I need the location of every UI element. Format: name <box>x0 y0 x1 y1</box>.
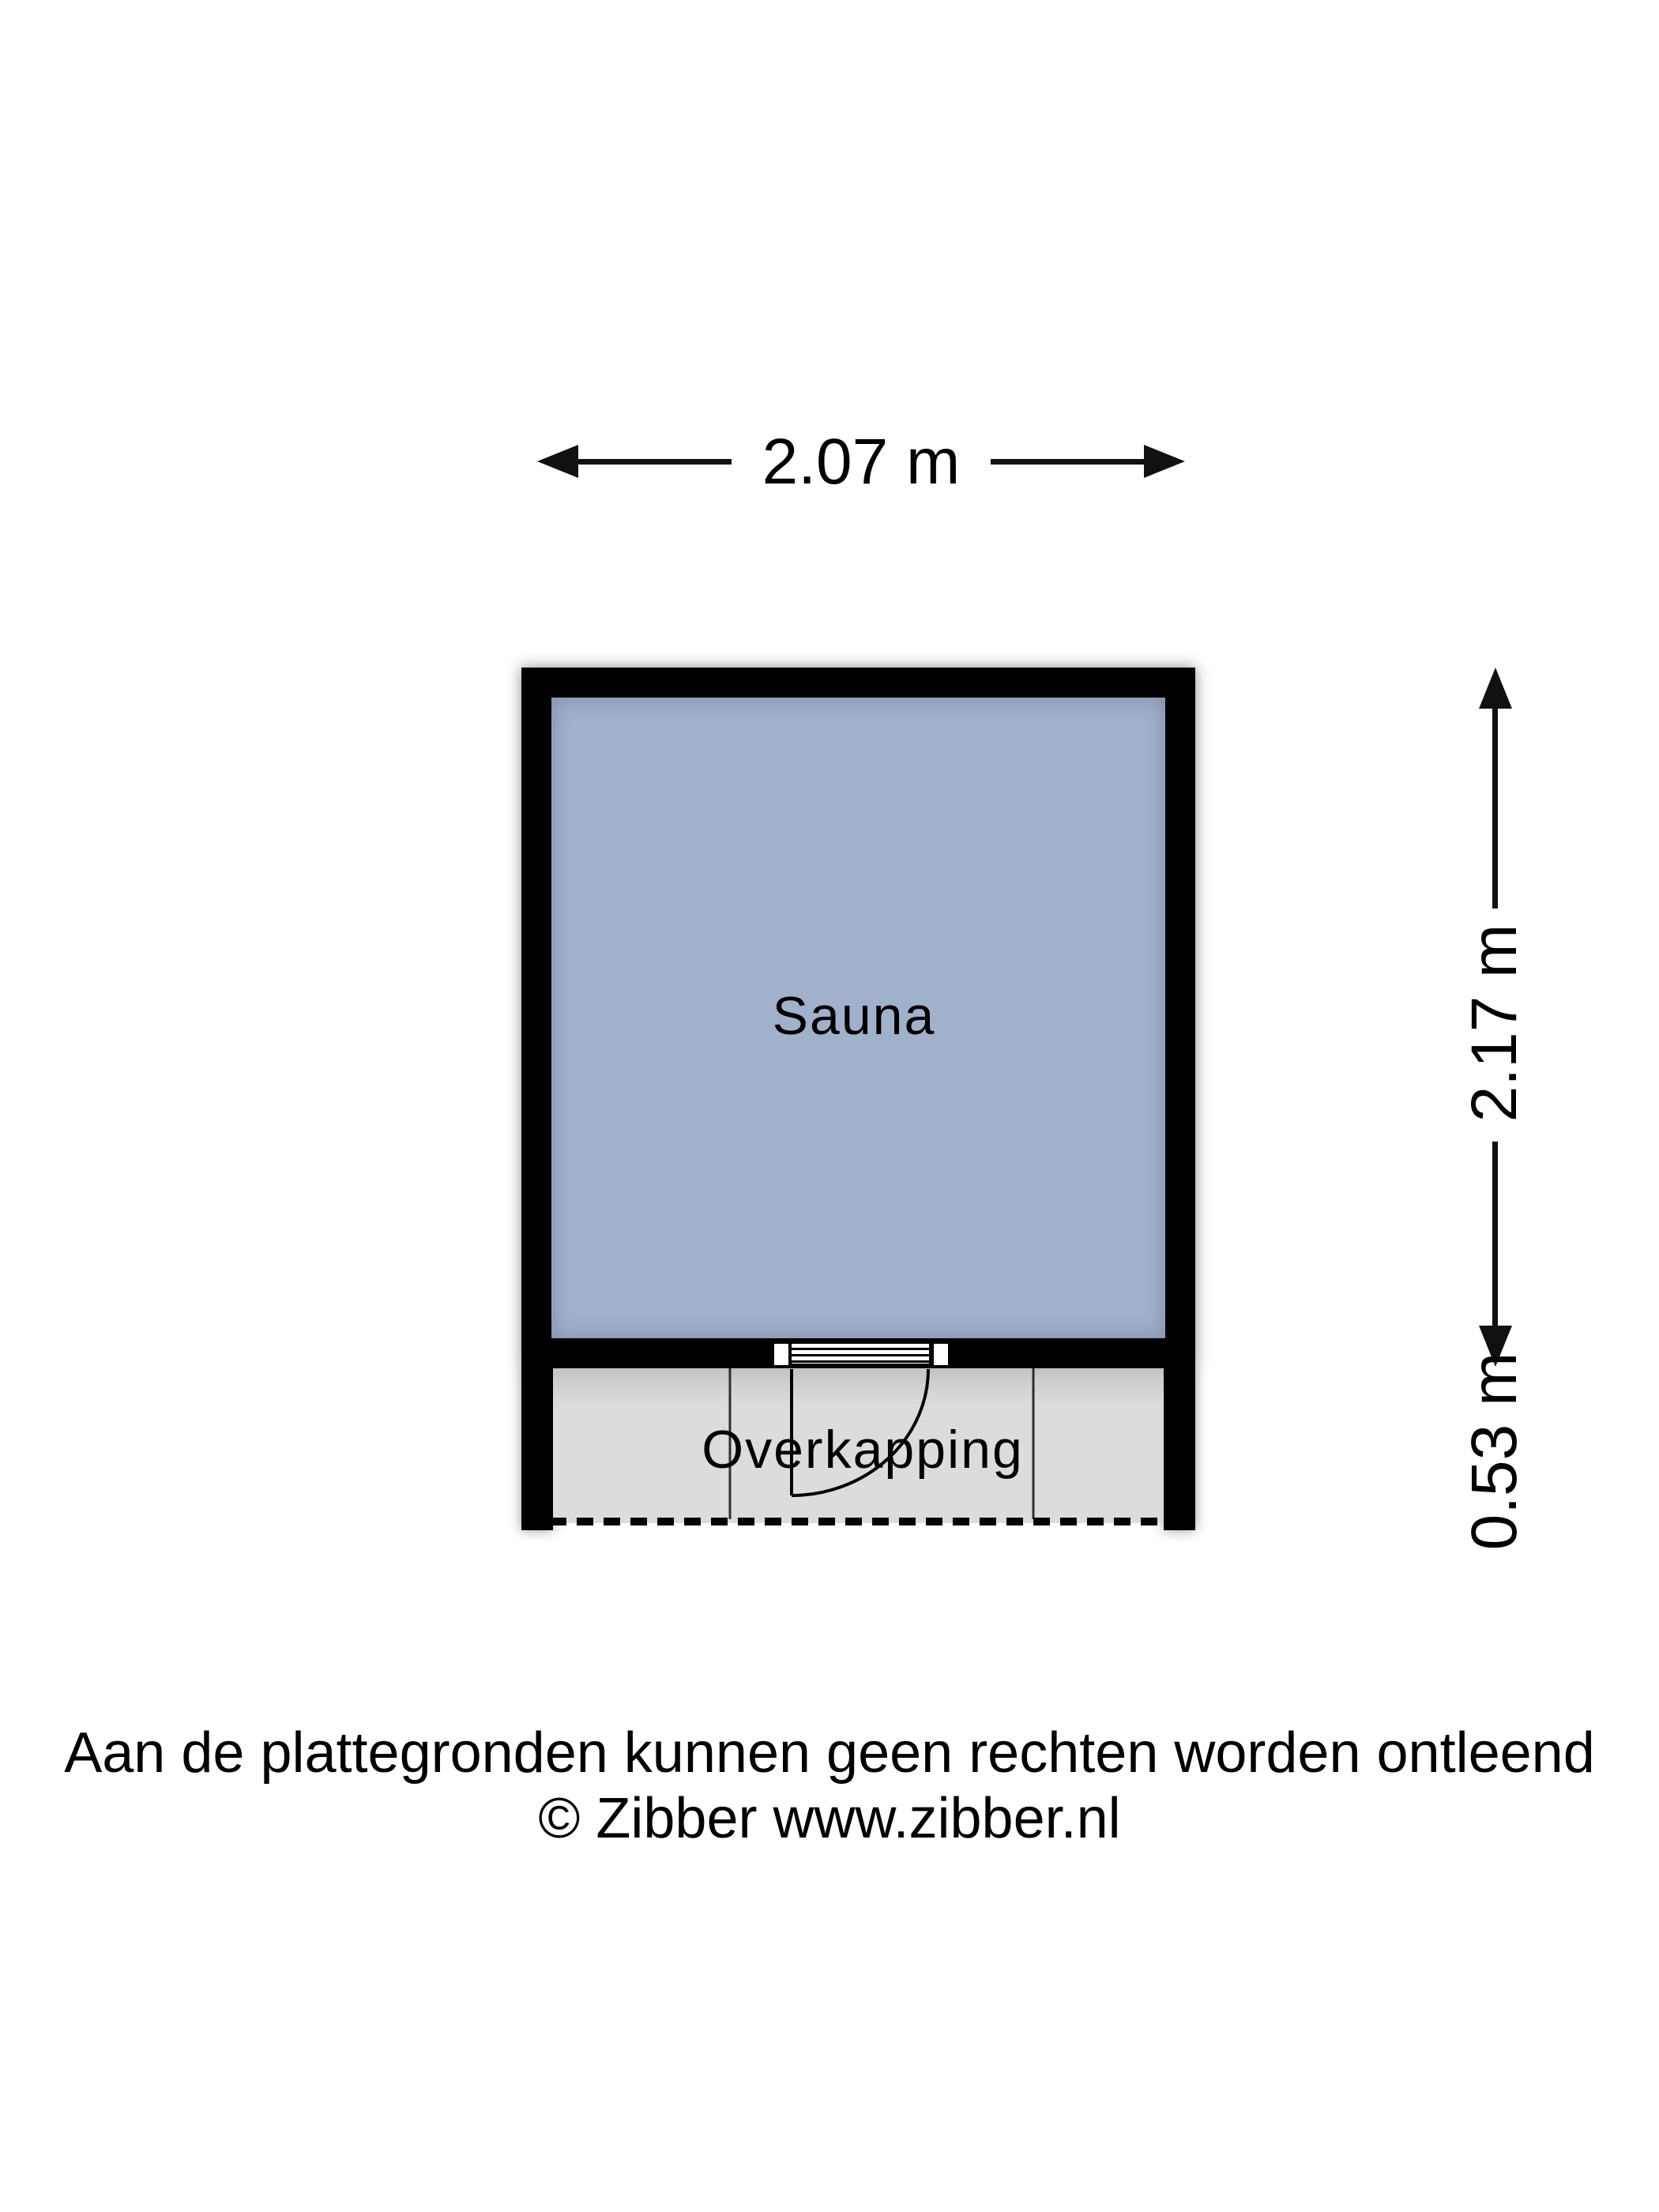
arrow-right-icon <box>1144 445 1185 478</box>
arrow-up-icon <box>1479 668 1512 709</box>
disclaimer-line2: © Zibber www.zibber.nl <box>0 1786 1659 1852</box>
dimension-line <box>991 459 1149 465</box>
width-dimension: 2.07 m <box>537 427 1185 498</box>
disclaimer-line1: Aan de plattegronden kunnen geen rechten… <box>0 1721 1659 1786</box>
overkapping-depth-label: 0.53 m <box>1458 1352 1532 1551</box>
overhang-dashed-boundary <box>550 1518 1195 1525</box>
overkapping-label: Overkapping <box>702 1419 1024 1480</box>
dimension-line <box>1492 707 1498 908</box>
floorplan-page: { "dimensions": { "width": "2.07 m", "sa… <box>0 0 1659 2212</box>
floorplan: Sauna Overkapping <box>521 668 1195 1533</box>
disclaimer: Aan de plattegronden kunnen geen rechten… <box>0 1721 1659 1852</box>
dimension-line <box>1492 1142 1498 1327</box>
door-jamb-right <box>931 1341 950 1367</box>
door-slats <box>789 1341 931 1366</box>
sauna-label: Sauna <box>773 985 936 1047</box>
sauna-depth-label: 2.17 m <box>1458 924 1532 1123</box>
height-dimension: 2.17 m 0.53 m <box>1461 668 1528 1560</box>
door <box>772 1341 950 1367</box>
door-jamb-left <box>772 1341 791 1367</box>
